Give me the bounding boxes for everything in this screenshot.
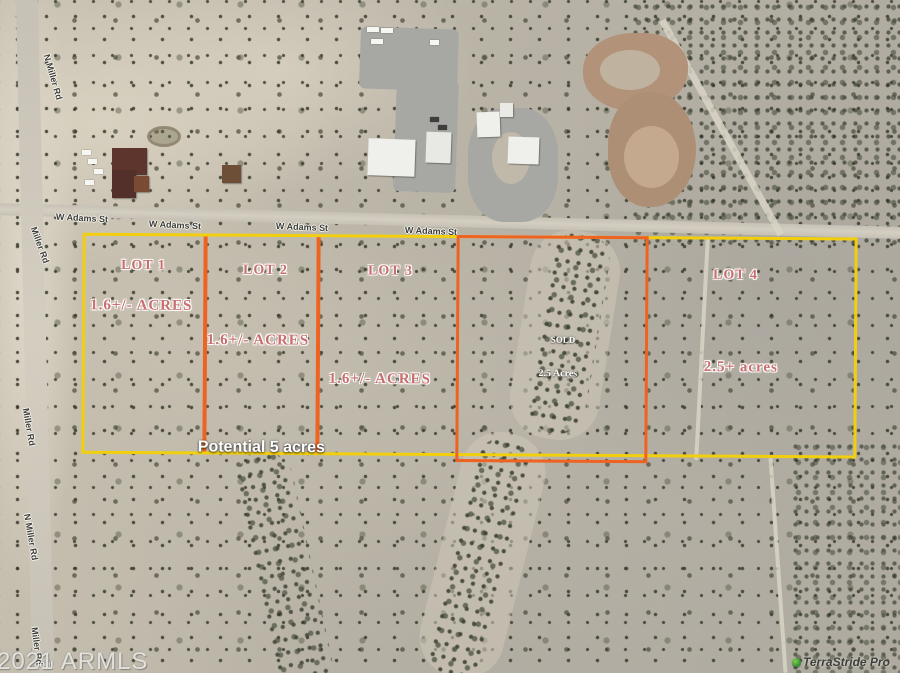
lot-4-acreage: 2.5+ acres (704, 359, 778, 376)
parcel-overlay: LOT 1 1.6+/- ACRES LOT 2 1.6+/- ACRES LO… (0, 0, 900, 673)
listing-photo: W Adams St W Adams St W Adams St W Adams… (0, 0, 900, 695)
lot-1-acreage: 1.6+/- ACRES (90, 297, 192, 315)
satellite-map: W Adams St W Adams St W Adams St W Adams… (0, 0, 900, 673)
lot-4-label: LOT 4 (713, 268, 758, 284)
terrastride-label: TerraStride Pro (803, 655, 890, 669)
armls-watermark: 2021 ARMLS (0, 648, 148, 676)
lot-3-label: LOT 3 (368, 263, 413, 279)
sold-label: SOLD (551, 335, 576, 345)
terrastride-icon (792, 658, 801, 667)
lot-3-acreage: 1.6+/- ACRES (329, 371, 431, 389)
terrastride-watermark: TerraStride Pro (792, 655, 890, 669)
potential-acreage-note: Potential 5 acres (198, 438, 325, 457)
lot-1-label: LOT 1 (121, 258, 166, 274)
sold-lot-boundary (455, 235, 648, 463)
lot-2-acreage: 1.6+/- ACRES (207, 332, 309, 350)
sold-acreage: 2.5 Acres (538, 368, 577, 379)
lot-2-label: LOT 2 (243, 263, 288, 279)
